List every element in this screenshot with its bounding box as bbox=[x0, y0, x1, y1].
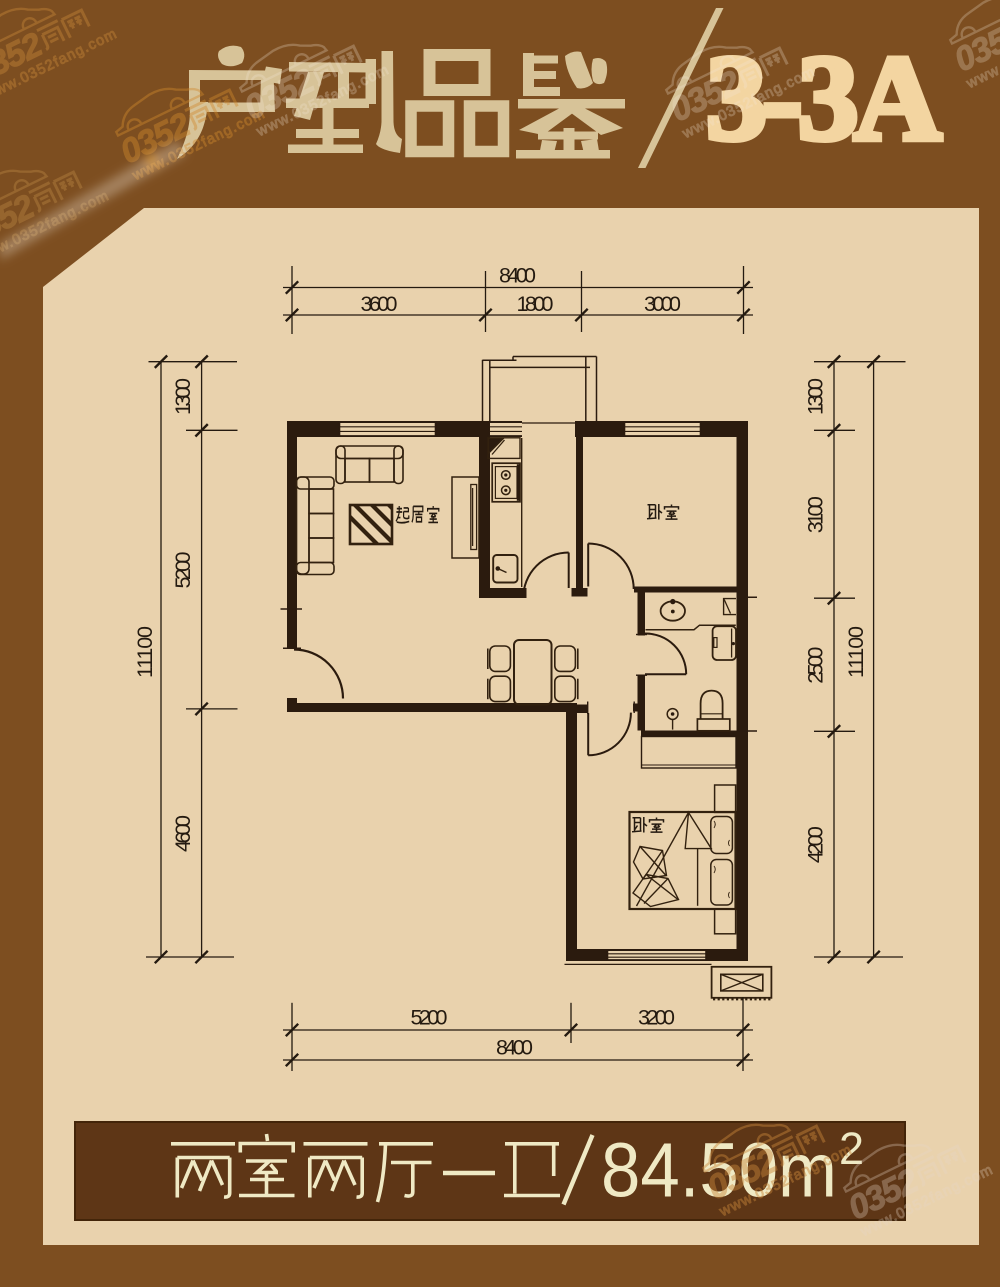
svg-text:1300: 1300 bbox=[804, 378, 828, 415]
svg-text:11100: 11100 bbox=[844, 626, 868, 678]
svg-text:4600: 4600 bbox=[171, 815, 195, 852]
svg-text:5200: 5200 bbox=[171, 551, 195, 588]
svg-text:5200: 5200 bbox=[411, 1006, 448, 1030]
svg-text:8400: 8400 bbox=[496, 1036, 533, 1060]
svg-text:3200: 3200 bbox=[638, 1006, 675, 1030]
svg-text:3600: 3600 bbox=[361, 292, 398, 316]
svg-text:4200: 4200 bbox=[804, 826, 828, 863]
svg-text:8400: 8400 bbox=[499, 264, 536, 288]
svg-text:2500: 2500 bbox=[804, 647, 828, 684]
svg-text:11100: 11100 bbox=[133, 626, 157, 678]
svg-text:3000: 3000 bbox=[644, 292, 681, 316]
svg-text:1300: 1300 bbox=[171, 378, 195, 415]
svg-text:1800: 1800 bbox=[517, 292, 554, 316]
svg-text:3100: 3100 bbox=[804, 496, 828, 533]
